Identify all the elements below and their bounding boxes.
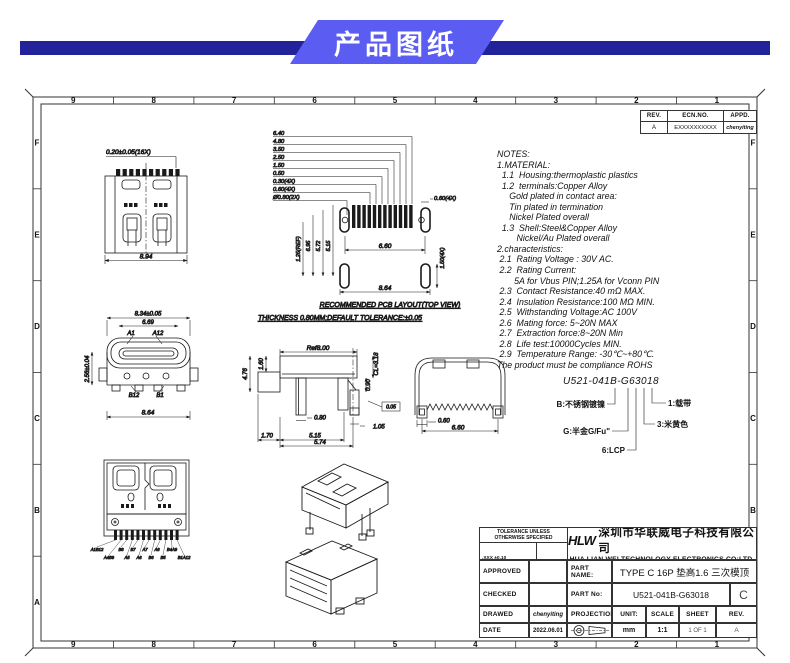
rev-value: A: [652, 125, 656, 131]
pin-label: A12: [152, 331, 164, 337]
note-line: 1.3 Shell:Steel&Copper Alloy: [497, 223, 727, 234]
code-label-color: 3:米黄色: [657, 419, 688, 429]
view-rear: 0.60 6.60: [415, 358, 505, 434]
ruler-label: 3: [554, 96, 559, 105]
third-angle-projection-icon: [571, 624, 609, 637]
ruler-label: 6: [312, 640, 317, 649]
ruler-label: C: [750, 414, 756, 423]
note-line: 1.MATERIAL:: [497, 160, 727, 171]
checked-value: [529, 583, 567, 606]
ruler-label: 1: [715, 640, 720, 649]
ruler-label: D: [34, 322, 40, 331]
dim-label: 5.15: [309, 434, 321, 440]
checked-label: CHECKED: [480, 591, 517, 598]
unit-value: mm: [623, 627, 635, 634]
note-line: 2.1 Rating Voltage : 30V AC.: [497, 254, 727, 265]
ruler-label: B: [34, 506, 40, 515]
date-label: DATE: [480, 627, 501, 634]
tolerance-box: TOLERANCE UNLESS OTHERWISE SPECIFIED .XX…: [479, 527, 568, 560]
ruler-label: 5: [393, 96, 398, 105]
dim-label: 8.64: [142, 410, 155, 417]
note-line: 1.1 Housing:thermoplastic plastics: [497, 170, 727, 181]
code-label-material: 6:LCP: [602, 446, 626, 455]
ruler-label: 4: [473, 640, 478, 649]
note-line: 2.9 Temperature Range: -30℃~+80℃.: [497, 349, 727, 360]
dim-label: 4.80: [273, 139, 285, 145]
view-bottom: A1B12 B8 B7 A7 A8 B4A9 A4B9 A5 A6 B6 B5 …: [90, 460, 191, 560]
dim-label: 0.30(4X): [273, 179, 295, 185]
dim-label: 2.56±0.04: [85, 355, 91, 383]
pin-label: A8: [153, 547, 160, 552]
dim-label: 0.80: [314, 416, 326, 422]
dim-label: 2.50: [272, 155, 285, 161]
view-isometric-bottom: [286, 541, 377, 614]
note-line: 2.4 Insulation Resistance:100 MΩ MIN.: [497, 297, 727, 308]
part-no-label: PART No:: [568, 591, 602, 598]
ruler-label: A: [34, 598, 40, 607]
dim-label: 0.60(4X): [273, 187, 295, 193]
unit-label: UNIT:: [620, 611, 638, 618]
dim-label: 6.69: [142, 320, 154, 326]
tolerance-flag: 0.05: [386, 405, 396, 411]
ruler-label: 5: [393, 640, 398, 649]
note-line: 2.2 Rating Current:: [497, 265, 727, 276]
ruler-label: 1: [715, 96, 720, 105]
part-no-value: U521-041B-G63018: [633, 590, 709, 600]
code-label-plating: G:半金G/Fu": [563, 426, 610, 436]
dim-label: 1.60: [259, 358, 265, 370]
ruler-label: 4: [473, 96, 478, 105]
rev-col-label: REV.: [729, 611, 744, 618]
note-line: Gold plated in contact area:: [497, 191, 727, 202]
pin-label: A1: [126, 331, 134, 337]
view-top: 0.20±0.05(16X) 8.94: [105, 149, 187, 264]
tolerance-header-2: OTHERWISE SPECIFIED: [480, 535, 567, 541]
pin-label: B4A9: [167, 547, 178, 552]
rev-value-bottom: A: [734, 627, 738, 634]
view-pcb-layout: 6.40 4.80 3.50 2.50 1.50 0.50 0.30(4X) 0…: [258, 131, 460, 322]
ruler-label: B: [750, 506, 756, 515]
pin-label: B7: [130, 547, 136, 552]
company-logo: HLW: [568, 533, 595, 548]
part-code-breakdown: U521-041B-G63018 B:不锈钢镀镍 G:半金G/Fu" 6:LCP…: [557, 376, 692, 455]
dim-label: 1.70: [261, 434, 273, 440]
note-line: 5A for Vbus PIN;1.25A for Vconn PIN: [497, 276, 727, 287]
dim-label: 0.20±0.05(16X): [106, 149, 151, 156]
notes-block: NOTES: 1.MATERIAL: 1.1 Housing:thermopla…: [497, 149, 727, 370]
dim-label: 1.50(4X): [440, 247, 446, 268]
ruler-label: 2: [634, 640, 639, 649]
view-isometric-top: [302, 464, 388, 540]
note-line: 2.5 Withstanding Voltage:AC 100V: [497, 307, 727, 318]
dim-label: 6.95: [306, 240, 312, 252]
code-label-shell: B:不锈钢镀镍: [557, 399, 605, 409]
pin-label: A5: [123, 555, 130, 560]
dim-label: 6.60: [379, 243, 392, 250]
part-name-label: PART NAME:: [568, 565, 611, 579]
appd-col-header: APPD.: [730, 113, 749, 119]
company-name-cn: 深圳市华联威电子科技有限公司: [598, 527, 756, 556]
dim-label: CL=3.18: [374, 352, 380, 376]
note-line: NOTES:: [497, 149, 727, 160]
ruler-label: 8: [151, 640, 156, 649]
ruler-label: 7: [232, 96, 237, 105]
dim-label: 6.60: [452, 425, 465, 432]
sheet-label: SHEET: [686, 611, 709, 618]
dim-label: 5.72: [316, 241, 322, 252]
ruler-label: F: [35, 138, 40, 147]
note-line: 2.characteristics:: [497, 244, 727, 255]
projection-label: PROJECTION:: [568, 611, 612, 618]
dim-label: 0.60: [438, 419, 450, 425]
note-line: 2.3 Contact Resistance:40 mΩ MAX.: [497, 286, 727, 297]
appd-value: chenyiting: [726, 125, 754, 131]
view-front: 8.34±0.05 6.69 A1 A12 B12 B1 2.56±0.04 8…: [85, 312, 198, 421]
drawed-label: DRAWED: [480, 611, 513, 618]
dim-label: Ø0.80(2X): [272, 195, 300, 201]
pin-label: A6: [135, 555, 142, 560]
note-line: 2.7 Extraction force:8~20N Min: [497, 328, 727, 339]
projection-symbol-cell: [567, 623, 612, 638]
page-title: 产品图纸: [334, 23, 458, 62]
dim-label: 8.94: [140, 254, 153, 261]
ruler-label: 6: [312, 96, 317, 105]
dim-label: 6.40: [273, 131, 285, 137]
note-line: Nickel Plated overall: [497, 212, 727, 223]
pin-label: B1A12: [178, 555, 191, 560]
view-side: 0.05 Ref8.00 CL=3.18 1.60 4.76 0.90 0.80…: [243, 345, 400, 448]
ruler-label: 9: [71, 96, 76, 105]
dim-label: 1.25(REF): [296, 236, 302, 262]
ruler-label: 9: [71, 640, 76, 649]
pin-label: A1B12: [90, 547, 104, 552]
dim-label: 1.50: [273, 163, 285, 169]
ruler-label: 7: [232, 640, 237, 649]
pcb-caption-1: RECOMMENDED PCB LAYOUT(TOP VIEW): [320, 302, 461, 309]
scale-label: SCALE: [651, 611, 674, 618]
dim-label: 0.50: [273, 171, 285, 177]
dim-label: 5.15: [326, 240, 332, 252]
pcb-caption-2: THICKNESS 0.80MM;DEFAULT TOLERANCE:±0.05: [258, 315, 422, 322]
dim-label: 0.60(4X): [434, 196, 456, 202]
ruler-label: 2: [634, 96, 639, 105]
approved-label: APPROVED: [480, 568, 521, 575]
ruler-label: 8: [151, 96, 156, 105]
dim-label: 3.50: [273, 147, 285, 153]
pin-label: B6: [148, 555, 154, 560]
part-name-value: TYPE C 16P 垫高1.6 三次模顶: [620, 565, 749, 579]
ecn-col-header: ECN.NO.: [682, 113, 708, 119]
dim-label: Ref8.00: [307, 345, 330, 352]
ruler-label: C: [34, 414, 40, 423]
product-drawing-page: { "colors":{"banner":"#5a5cf2","bar":"#2…: [0, 0, 790, 663]
drawed-value: chenyiting: [533, 612, 563, 618]
note-line: 2.6 Mating force: 5~20N MAX: [497, 318, 727, 329]
rev-col-header: REV.: [647, 113, 661, 119]
pin-label: B5: [160, 555, 166, 560]
dim-label: 4.76: [243, 368, 249, 380]
date-value: 2022.06.01: [533, 628, 563, 634]
ruler-label: D: [750, 322, 756, 331]
dim-label: 8.34±0.05: [135, 312, 162, 318]
ruler-label: E: [34, 230, 40, 239]
scale-value: 1:1: [657, 627, 667, 634]
pin-label: B12: [129, 393, 140, 399]
note-line: Nickel/Au Plated overall: [497, 233, 727, 244]
ecn-value: EXXXXXXXXXX: [674, 125, 717, 131]
pin-label: B8: [118, 547, 124, 552]
ruler-label: E: [750, 230, 756, 239]
dim-label: 0.90: [366, 379, 372, 391]
pin-label: A4B9: [103, 555, 115, 560]
company-cell: HLW 深圳市华联威电子科技有限公司 HUA LIAN WEI TECHNOLO…: [567, 527, 757, 560]
code-label-packaging: 1:载带: [668, 398, 691, 408]
dim-label: 1.05: [373, 425, 385, 431]
note-line: 2.8 Life test:10000Cycles MIN.: [497, 339, 727, 350]
note-line: The product must be compliance ROHS: [497, 360, 727, 371]
approved-value: [529, 560, 567, 583]
page-title-banner: 产品图纸: [288, 20, 504, 64]
pin-label: A7: [141, 547, 148, 552]
sheet-value: 1 OF 1: [688, 628, 706, 634]
part-number: U521-041B-G63018: [563, 376, 659, 387]
ruler-label: 3: [554, 640, 559, 649]
rev-letter: C: [739, 588, 748, 602]
dim-label: 5.74: [314, 440, 326, 446]
dim-label: 8.64: [379, 285, 392, 292]
note-line: 1.2 terminals:Copper Alloy: [497, 181, 727, 192]
note-line: Tin plated in termination: [497, 202, 727, 213]
ruler-label: F: [751, 138, 756, 147]
pin-label: B1: [156, 393, 163, 399]
